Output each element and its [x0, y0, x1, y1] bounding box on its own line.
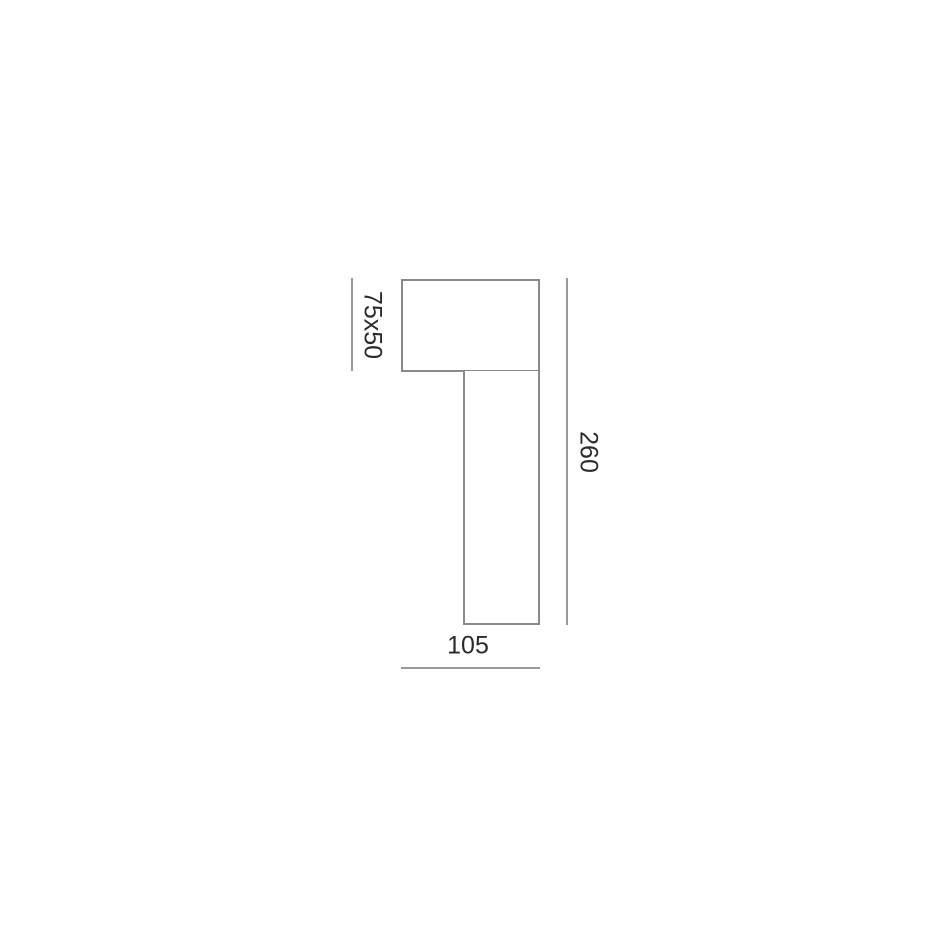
dimension-line-width: [401, 667, 540, 669]
dimension-label-width: 105: [447, 634, 489, 659]
dimension-label-head: 75x50: [360, 291, 385, 359]
dimension-diagram: 75x50 260 105: [0, 0, 950, 950]
dimension-line-height: [566, 278, 568, 625]
dimension-line-head: [351, 278, 353, 371]
fixture-head-outline: [401, 279, 540, 372]
dimension-label-height: 260: [576, 431, 601, 473]
fixture-stem-outline: [463, 371, 540, 625]
